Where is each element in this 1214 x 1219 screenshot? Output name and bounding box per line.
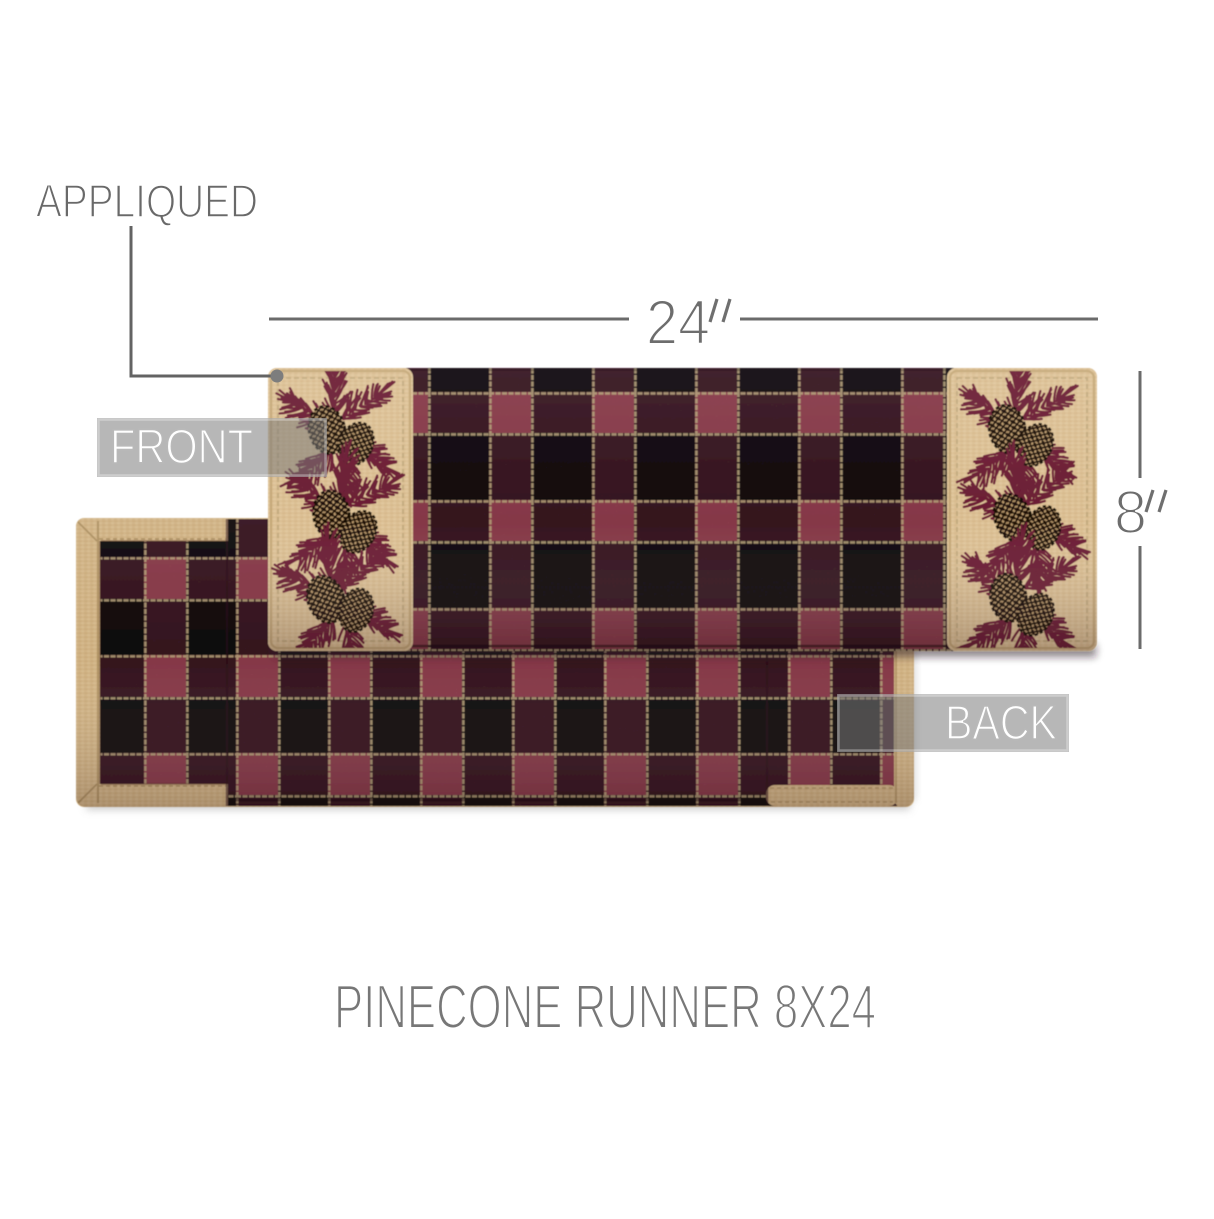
svg-text:24: 24 [646, 288, 710, 358]
svg-text:8: 8 [1114, 479, 1147, 546]
svg-text:FRONT: FRONT [110, 421, 253, 474]
svg-text:BACK: BACK [945, 697, 1057, 750]
svg-text:APPLIQUED: APPLIQUED [36, 175, 258, 227]
svg-text:PINECONE RUNNER 8X24: PINECONE RUNNER 8X24 [334, 973, 876, 1042]
